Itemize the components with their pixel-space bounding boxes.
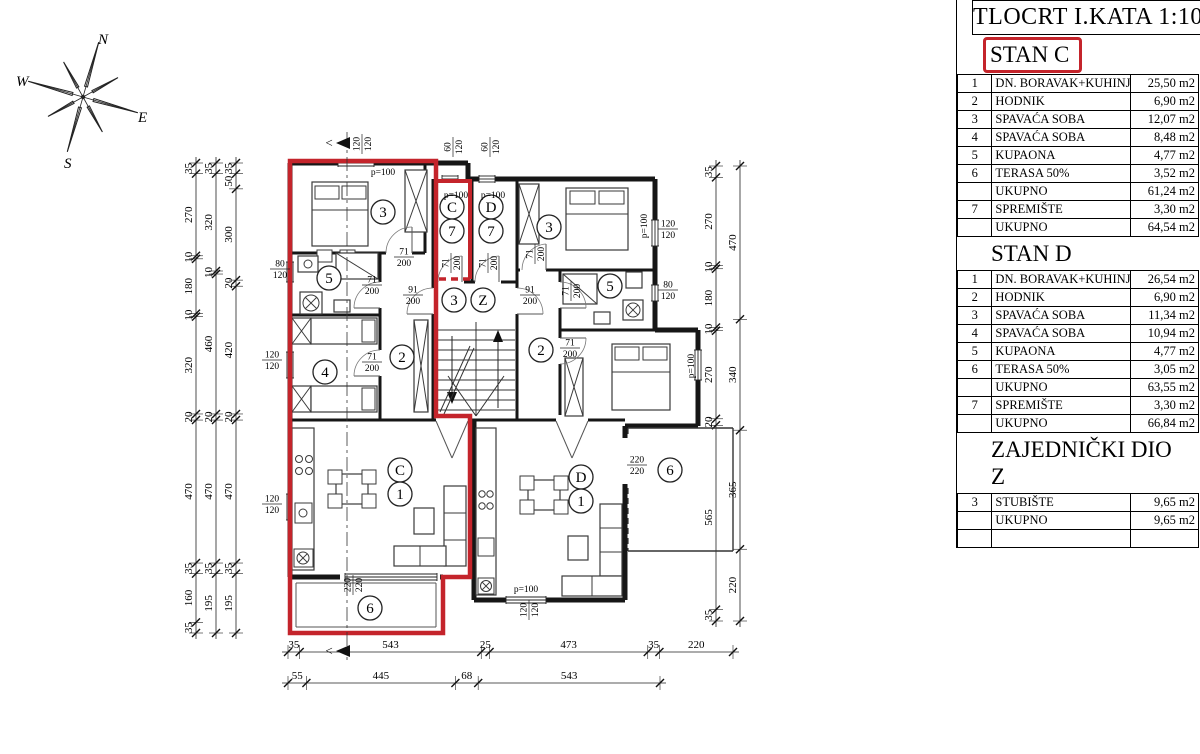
dimension-label: 20 — [223, 411, 235, 423]
stair-break-line — [444, 348, 474, 414]
dimension-label: 270 — [703, 213, 715, 230]
appliance — [478, 538, 494, 556]
size-label: 80120 — [658, 281, 678, 303]
pillow — [342, 186, 366, 199]
row-number: 1 — [958, 271, 992, 289]
table-row: UKUPNO66,84 m2 — [958, 415, 1199, 433]
room-number: 3 — [379, 205, 387, 221]
room-name: DN. BORAVAK+KUHINJA — [992, 271, 1131, 289]
row-number: 5 — [958, 343, 992, 361]
dimension-label: 35 — [203, 562, 215, 574]
door-opening — [619, 438, 630, 484]
room-number: 3 — [545, 220, 553, 236]
room-name: UKUPNO — [992, 219, 1131, 237]
row-number: 4 — [958, 129, 992, 147]
table-row: 1DN. BORAVAK+KUHINJA25,50 m2 — [958, 75, 1199, 93]
room-area: 6,90 m2 — [1131, 289, 1199, 307]
stair-break-line — [440, 346, 470, 412]
room-area: 4,77 m2 — [1131, 343, 1199, 361]
size-label-bottom: 120 — [492, 140, 502, 155]
size-label: 120120 — [262, 351, 282, 373]
size-label-bottom: 200 — [563, 350, 578, 360]
dimension-label: 180 — [185, 277, 195, 294]
apartment-header: STAN D — [987, 239, 1082, 269]
room-name: SPREMIŠTE — [992, 201, 1131, 219]
plan-title: TLOCRT I.KATA 1:100 — [972, 0, 1200, 35]
size-label-bottom: 120 — [531, 603, 541, 618]
sofa-c — [444, 486, 466, 566]
size-label-top: 71 — [367, 276, 377, 286]
room-area: 4,77 m2 — [1131, 147, 1199, 165]
size-label-bottom: 220 — [355, 578, 365, 593]
row-number: 3 — [958, 494, 992, 512]
size-label-bottom: 120 — [265, 506, 280, 516]
staircase — [437, 322, 515, 416]
size-label-top: 71 — [565, 339, 575, 349]
size-label: 91200 — [403, 286, 423, 308]
size-label-bottom: 200 — [406, 297, 421, 307]
room-number: 6 — [666, 463, 674, 479]
row-number: 7 — [958, 201, 992, 219]
dimension-label: 470 — [203, 483, 215, 500]
dimension-label: 35 — [703, 166, 715, 178]
room-number: 4 — [321, 365, 329, 381]
size-label-bottom: 200 — [490, 256, 500, 271]
size-label: 71200 — [526, 244, 548, 264]
size-label-bottom: 200 — [573, 284, 583, 299]
room-number: 6 — [366, 601, 374, 617]
apartment-tables: STAN C1DN. BORAVAK+KUHINJA25,50 m22HODNI… — [957, 35, 1200, 548]
parapet-label: p=100 — [514, 585, 539, 595]
parapet-label: p=100 — [481, 191, 506, 201]
chair — [554, 500, 568, 514]
dimension-label: 50 — [223, 175, 235, 187]
size-label-top: 120 — [353, 137, 363, 152]
room-name: TERASA 50% — [992, 361, 1131, 379]
size-label-bottom: 200 — [453, 256, 463, 271]
table-row: UKUPNO61,24 m2 — [958, 183, 1199, 201]
row-number: 3 — [958, 111, 992, 129]
compass-north-label: N — [97, 32, 109, 48]
dimension-label: 35 — [223, 162, 235, 174]
dimension-label: 10 — [185, 309, 195, 321]
dimension-label: 195 — [203, 595, 215, 612]
room-name: UKUPNO — [992, 183, 1131, 201]
page: N E S W 35270101801032020470351603535320… — [0, 0, 1200, 754]
dimension-label: 470 — [185, 483, 195, 500]
size-label: 120120 — [520, 600, 542, 620]
room-name: SPAVAĆA SOBA — [992, 307, 1131, 325]
row-number: 5 — [958, 147, 992, 165]
size-label-top: 71 — [526, 249, 536, 259]
row-number: 3 — [958, 307, 992, 325]
table-row: 7SPREMIŠTE3,30 m2 — [958, 397, 1199, 415]
room-area: 25,50 m2 — [1131, 75, 1199, 93]
table-row: 1DN. BORAVAK+KUHINJA26,54 m2 — [958, 271, 1199, 289]
size-label: 60120 — [481, 137, 503, 157]
room-area: 11,34 m2 — [1131, 307, 1199, 325]
size-label-bottom: 200 — [397, 259, 412, 269]
room-name: KUPAONA — [992, 147, 1131, 165]
size-label: 71200 — [479, 253, 501, 273]
compass-spoke — [48, 97, 83, 116]
dimension-label: 220 — [727, 576, 739, 593]
dimension-label: 20 — [203, 411, 215, 423]
dimension-label: 543 — [561, 670, 578, 682]
size-label-top: 120 — [265, 495, 280, 505]
size-label-top: 91 — [525, 286, 535, 296]
compass-spoke — [64, 62, 83, 97]
door-opening — [512, 288, 522, 314]
room-number: 3 — [450, 293, 458, 309]
compass-south-label: S — [64, 156, 72, 172]
dimension-label: 565 — [703, 509, 715, 526]
chair — [520, 500, 534, 514]
table-row: 6TERASA 50%3,52 m2 — [958, 165, 1199, 183]
table-row: 2HODNIK6,90 m2 — [958, 289, 1199, 307]
size-label-top: 80 — [275, 260, 285, 270]
chair — [520, 476, 534, 490]
room-area: 12,07 m2 — [1131, 111, 1199, 129]
area-table: 1DN. BORAVAK+KUHINJA26,54 m22HODNIK6,90 … — [957, 270, 1199, 433]
size-label-bottom: 120 — [661, 231, 676, 241]
dimension-label: 10 — [185, 251, 195, 263]
sink — [626, 272, 642, 288]
room-name: SPAVAĆA SOBA — [992, 325, 1131, 343]
size-label-top: 71 — [562, 286, 572, 296]
size-label: 120120 — [262, 495, 282, 517]
room-number: 7 — [448, 224, 456, 240]
room-name — [992, 530, 1131, 548]
parapet-label: p=100 — [444, 191, 469, 201]
floor-plan: 3527010180103202047035160353532010460204… — [185, 112, 945, 712]
size-label-top: 71 — [479, 258, 489, 268]
section-marker-arrow — [336, 645, 350, 657]
room-name: TERASA 50% — [992, 165, 1131, 183]
size-label-top: 71 — [442, 258, 452, 268]
coffee-table-d — [568, 536, 588, 560]
row-number: 2 — [958, 93, 992, 111]
room-area: 3,52 m2 — [1131, 165, 1199, 183]
room-name: KUPAONA — [992, 343, 1131, 361]
door-opening — [475, 277, 501, 287]
apartment-header: STAN C — [983, 37, 1082, 73]
row-number — [958, 379, 992, 397]
section-marker-chevron: < — [325, 643, 332, 658]
apartment-header: ZAJEDNIČKI DIO Z — [987, 435, 1200, 492]
dimension-label: 470 — [223, 483, 235, 500]
nightstand — [317, 250, 332, 262]
dimension-label: 180 — [703, 289, 715, 306]
table-row — [958, 530, 1199, 548]
parapet-label: p=100 — [371, 168, 396, 178]
room-number: 5 — [606, 279, 614, 295]
table-row: UKUPNO9,65 m2 — [958, 512, 1199, 530]
dimension-label: 300 — [223, 226, 235, 243]
row-number: 7 — [958, 397, 992, 415]
room-area: 3,30 m2 — [1131, 397, 1199, 415]
room-area: 66,84 m2 — [1131, 415, 1199, 433]
size-label: p=100 — [481, 191, 506, 201]
dimension-label: 10 — [203, 267, 215, 279]
room-area: 26,54 m2 — [1131, 271, 1199, 289]
row-number: 4 — [958, 325, 992, 343]
entrance-swing — [436, 421, 452, 458]
size-label-bottom: 120 — [364, 137, 374, 152]
dimension-label: 35 — [703, 609, 715, 621]
size-label-top: 71 — [367, 353, 377, 363]
dimension-label: 35 — [185, 162, 195, 174]
pillow — [570, 191, 595, 204]
room-area: 6,90 m2 — [1131, 93, 1199, 111]
pillow — [643, 347, 667, 360]
room-number: C — [395, 463, 405, 479]
dimension-label: 35 — [223, 562, 235, 574]
entrance-swing — [556, 421, 572, 458]
chair — [328, 470, 342, 484]
dimension-label: 160 — [185, 589, 195, 606]
size-label-top: 60 — [444, 142, 454, 152]
room-name: HODNIK — [992, 93, 1131, 111]
dimension-label: 10 — [703, 261, 715, 273]
dimension-label: 220 — [688, 639, 705, 651]
size-label-bottom: 120 — [661, 292, 676, 302]
size-label-top: 71 — [399, 248, 409, 258]
size-label-top: 120 — [661, 220, 676, 230]
room-area: 63,55 m2 — [1131, 379, 1199, 397]
room-number: 1 — [396, 487, 404, 503]
chair — [328, 494, 342, 508]
dimension-label: 10 — [703, 323, 715, 335]
size-label-bottom: 220 — [630, 467, 645, 477]
size-label-bottom: 120 — [273, 271, 288, 281]
room-area: 64,54 m2 — [1131, 219, 1199, 237]
room-name: UKUPNO — [992, 415, 1131, 433]
room-number: C — [447, 200, 457, 216]
size-label: p=100 — [444, 191, 469, 201]
compass-west-label: W — [16, 74, 30, 90]
row-number: 6 — [958, 165, 992, 183]
sink — [298, 256, 318, 272]
stair-arrow-up-head — [493, 330, 503, 342]
room-area: 8,48 m2 — [1131, 129, 1199, 147]
row-number: 1 — [958, 75, 992, 93]
size-label: p=100 — [371, 168, 396, 178]
size-label: 120120 — [353, 134, 375, 154]
table-row: 7SPREMIŠTE3,30 m2 — [958, 201, 1199, 219]
room-area: 10,94 m2 — [1131, 325, 1199, 343]
room-area: 3,30 m2 — [1131, 201, 1199, 219]
row-number — [958, 415, 992, 433]
entrance-swing — [572, 421, 588, 458]
room-number: 5 — [325, 271, 333, 287]
dimension-label: 445 — [373, 670, 390, 682]
size-label: 71200 — [442, 253, 464, 273]
dimension-label: 35 — [648, 639, 660, 651]
dimension-label: 20 — [703, 416, 715, 428]
section-marker-chevron: < — [325, 135, 332, 150]
size-label-bottom: 200 — [523, 297, 538, 307]
door-opening — [520, 265, 546, 275]
dimension-label: 420 — [223, 341, 235, 358]
table-row: 6TERASA 50%3,05 m2 — [958, 361, 1199, 379]
chair — [554, 476, 568, 490]
size-label-bottom: 120 — [265, 362, 280, 372]
size-label: p=100 — [687, 354, 697, 379]
table-row: UKUPNO63,55 m2 — [958, 379, 1199, 397]
room-number: 1 — [577, 494, 585, 510]
row-number — [958, 530, 992, 548]
dimension-label: 55 — [292, 670, 304, 682]
room-name: STUBIŠTE — [992, 494, 1131, 512]
chair — [362, 470, 376, 484]
room-number: 2 — [537, 343, 545, 359]
dimension-label: 460 — [203, 335, 215, 352]
size-label: 220220 — [627, 456, 647, 478]
size-label: p=100 — [514, 585, 539, 595]
compass-east-label: E — [137, 110, 147, 126]
pillow — [599, 191, 624, 204]
dimension-label: 25 — [480, 639, 492, 651]
room-area — [1131, 530, 1199, 548]
area-tables-panel: TLOCRT I.KATA 1:100 STAN C1DN. BORAVAK+K… — [956, 0, 1200, 548]
dimension-label: 35 — [185, 562, 195, 574]
size-label: 60120 — [444, 137, 466, 157]
dimension-label: 320 — [185, 357, 195, 374]
room-name: SPAVAĆA SOBA — [992, 129, 1131, 147]
size-label-bottom: 200 — [365, 287, 380, 297]
size-label-top: 91 — [408, 286, 418, 296]
chair — [362, 494, 376, 508]
sofa-d — [600, 504, 622, 576]
room-number: 7 — [487, 224, 495, 240]
dimension-label: 195 — [223, 595, 235, 612]
table-row: 3SPAVAĆA SOBA11,34 m2 — [958, 307, 1199, 325]
table-row: UKUPNO64,54 m2 — [958, 219, 1199, 237]
size-label-bottom: 120 — [455, 140, 465, 155]
pillow — [615, 347, 639, 360]
room-name: UKUPNO — [992, 512, 1131, 530]
room-name: UKUPNO — [992, 379, 1131, 397]
dimension-label: 320 — [203, 214, 215, 231]
dimension-label: 68 — [461, 670, 473, 682]
compass-rose: N E S W — [8, 22, 168, 187]
dimension-label: 270 — [185, 206, 195, 223]
size-label: 220220 — [344, 575, 366, 595]
dimension-label: 35 — [288, 639, 300, 651]
room-area: 9,65 m2 — [1131, 512, 1199, 530]
row-number — [958, 219, 992, 237]
dimension-label: 543 — [382, 639, 399, 651]
row-number: 6 — [958, 361, 992, 379]
size-label-top: 60 — [481, 142, 491, 152]
room-name: DN. BORAVAK+KUHINJA — [992, 75, 1131, 93]
room-number: 2 — [398, 350, 406, 366]
room-name: SPAVAĆA SOBA — [992, 111, 1131, 129]
size-label-top: 220 — [344, 578, 354, 593]
dimension-label: 20 — [185, 411, 195, 423]
size-label-bottom: 200 — [537, 247, 547, 262]
table-row: 5KUPAONA4,77 m2 — [958, 343, 1199, 361]
table-row: 2HODNIK6,90 m2 — [958, 93, 1199, 111]
toilet — [334, 300, 350, 312]
dimension-label: 20 — [223, 277, 235, 289]
area-table: 1DN. BORAVAK+KUHINJA25,50 m22HODNIK6,90 … — [957, 74, 1199, 237]
dimension-label: 470 — [727, 234, 739, 251]
room-area: 9,65 m2 — [1131, 494, 1199, 512]
room-number: Z — [478, 293, 487, 309]
size-label-top: 220 — [630, 456, 645, 466]
compass-spoke — [83, 78, 118, 97]
table-row: 4SPAVAĆA SOBA8,48 m2 — [958, 129, 1199, 147]
row-number — [958, 183, 992, 201]
size-label: 120120 — [658, 220, 678, 242]
compass-center — [81, 95, 85, 99]
pillow — [362, 320, 375, 342]
room-number: D — [486, 200, 497, 216]
row-number: 2 — [958, 289, 992, 307]
room-area: 61,24 m2 — [1131, 183, 1199, 201]
size-label-bottom: 200 — [365, 364, 380, 374]
kitchen-counter-d — [476, 428, 496, 595]
kitchen-sink — [295, 503, 312, 523]
dimension-label: 270 — [703, 366, 715, 383]
table-row: 4SPAVAĆA SOBA10,94 m2 — [958, 325, 1199, 343]
dimension-label: 35 — [203, 162, 215, 174]
dimension-label: 340 — [727, 366, 739, 383]
table-row: 3SPAVAĆA SOBA12,07 m2 — [958, 111, 1199, 129]
dimension-label: 35 — [185, 622, 195, 634]
size-label: p=100 — [640, 214, 650, 239]
size-label-top: 120 — [520, 603, 530, 618]
parapet-label: p=100 — [640, 214, 650, 239]
toilet — [594, 312, 610, 324]
entrance-swing — [452, 421, 468, 458]
size-label-top: 120 — [265, 351, 280, 361]
section-marker-arrow — [336, 137, 350, 149]
size-label-top: 80 — [663, 281, 673, 291]
pillow — [362, 388, 375, 410]
table-row: 3STUBIŠTE9,65 m2 — [958, 494, 1199, 512]
area-table: 3STUBIŠTE9,65 m2UKUPNO9,65 m2 — [957, 493, 1199, 548]
table-row: 5KUPAONA4,77 m2 — [958, 147, 1199, 165]
room-area: 3,05 m2 — [1131, 361, 1199, 379]
pillow — [315, 186, 339, 199]
room-number: D — [576, 470, 587, 486]
parapet-label: p=100 — [687, 354, 697, 379]
coffee-table-c — [414, 508, 434, 534]
compass-spoke — [83, 97, 102, 132]
room-name: SPREMIŠTE — [992, 397, 1131, 415]
dimension-label: 473 — [560, 639, 577, 651]
row-number — [958, 512, 992, 530]
room-name: HODNIK — [992, 289, 1131, 307]
